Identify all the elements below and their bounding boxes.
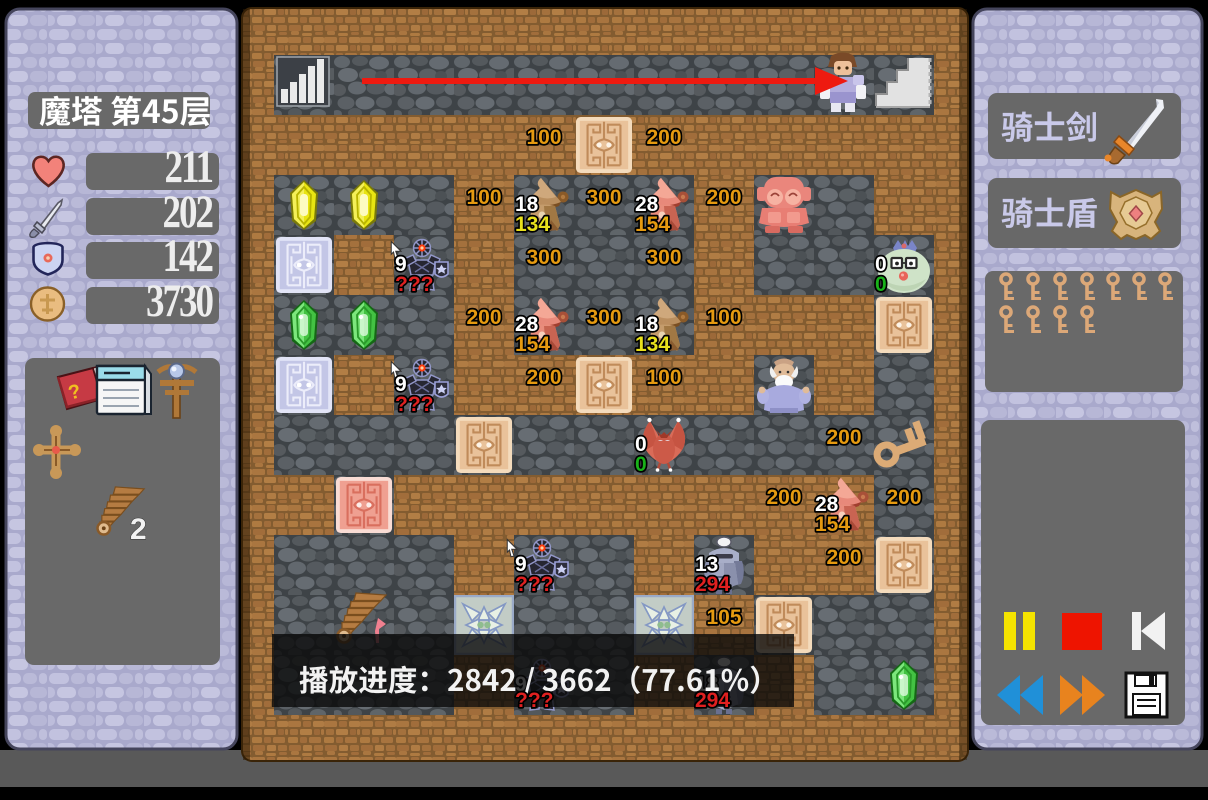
svg-text:294: 294: [695, 689, 730, 712]
svg-text:???: ???: [515, 689, 553, 712]
